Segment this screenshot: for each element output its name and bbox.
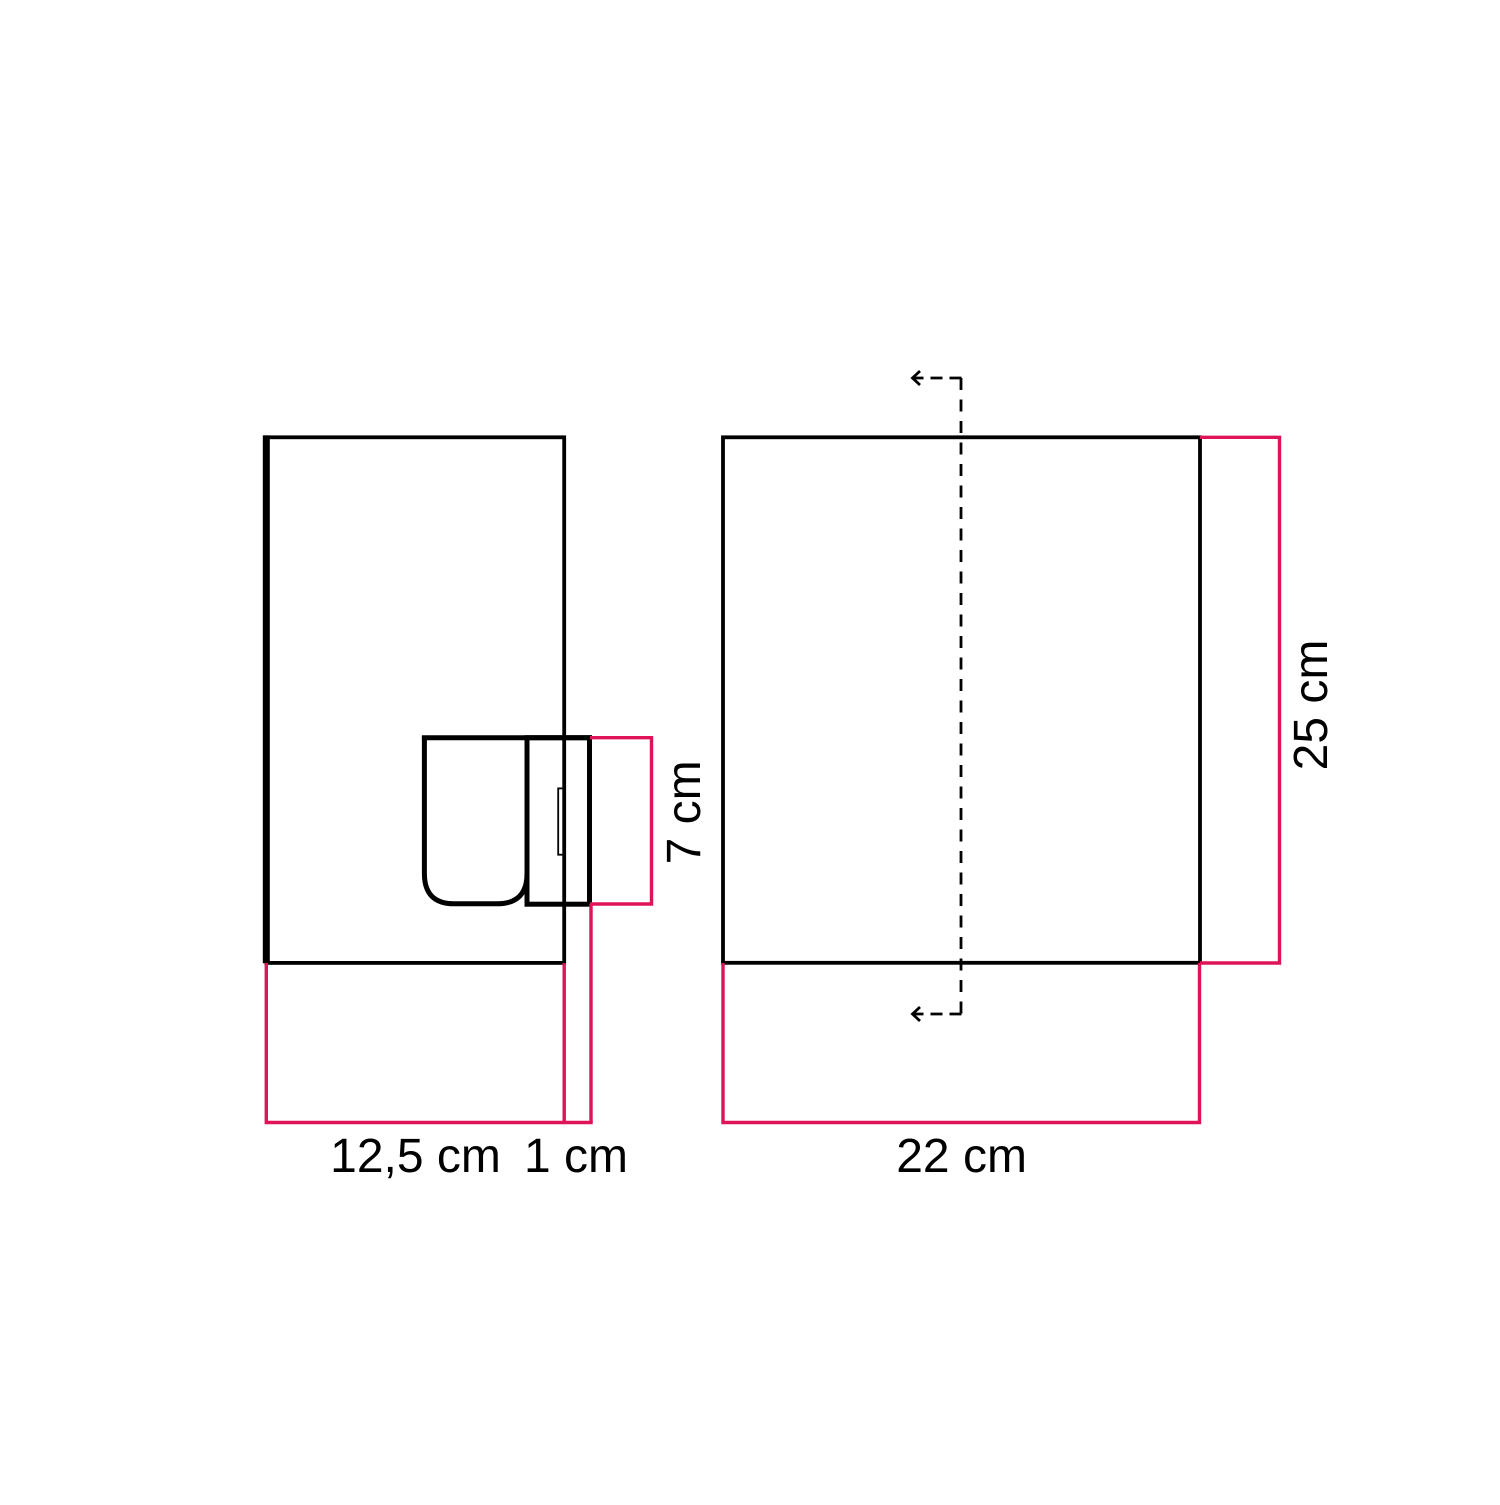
svg-text:1 cm: 1 cm bbox=[524, 1130, 628, 1183]
svg-text:22 cm: 22 cm bbox=[896, 1130, 1027, 1183]
svg-text:25 cm: 25 cm bbox=[1285, 640, 1338, 771]
svg-text:7 cm: 7 cm bbox=[658, 760, 711, 864]
svg-text:12,5 cm: 12,5 cm bbox=[330, 1130, 501, 1183]
